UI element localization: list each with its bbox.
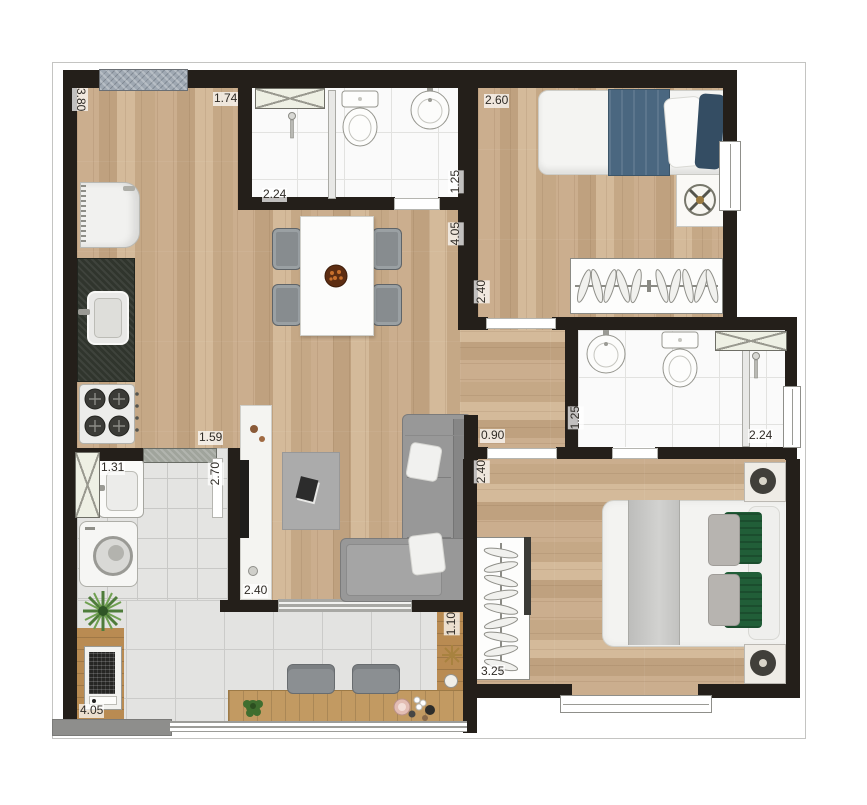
bathroom2-sink-icon (584, 330, 628, 374)
bedroom2-sheet-fold (628, 500, 680, 645)
floor-plan: 3.80 1.74 2.24 1.25 2.60 4.05 2.40 1.59 … (0, 0, 867, 805)
table-plant-icon (240, 694, 266, 720)
nightstand-lamp-icon (750, 650, 776, 676)
wall-bathroom1-left (238, 70, 252, 210)
nightstand-lamp-icon (750, 468, 776, 494)
balcony-parapet (52, 719, 172, 736)
wall-bedroom2-bottom-a (477, 684, 572, 698)
dim-bedroom1-depth: 2.40 (474, 280, 490, 303)
bathroom1-door (394, 198, 440, 210)
dim-entry-width: 1.74 (213, 92, 238, 106)
dim-bedroom2-depth: 2.40 (474, 460, 490, 483)
kitchen-sink-counter (77, 258, 135, 382)
sofa-pillow (408, 532, 447, 576)
wall-hall-bottom-b (556, 447, 578, 459)
bathroom1-toilet-icon (340, 90, 380, 148)
kitchen-pass-counter (143, 448, 217, 463)
bedroom2-pillow-gray (708, 514, 740, 566)
dim-service-depth: 2.70 (208, 462, 224, 485)
dining-chair (372, 284, 402, 326)
dining-chair (272, 284, 302, 326)
wall-bedroom2-bottom-b (698, 684, 800, 698)
dim-hall-width: 0.90 (480, 429, 505, 443)
decor-dot (259, 436, 265, 442)
washing-machine (79, 521, 138, 587)
counter-star-plant-icon (441, 644, 463, 666)
wall-bathroom2-bottom-b (655, 447, 797, 459)
kitchen-faucet-icon (78, 309, 90, 315)
wall-bedroom2-right (786, 459, 800, 698)
bathroom2-toilet-icon (660, 331, 700, 389)
wall-mid-b (552, 317, 797, 330)
dim-bedroom1-width: 2.60 (484, 94, 509, 108)
bedroom1-closet (570, 258, 723, 314)
sofa-chaise (340, 538, 472, 602)
bedroom1-door (486, 318, 556, 329)
fridge-handle (123, 186, 135, 191)
wall-bedroom1-right-upper (723, 70, 737, 143)
dim-kitchen-pass: 1.59 (198, 431, 223, 445)
balcony-stool (352, 664, 400, 694)
table-decor-icons (392, 694, 440, 722)
dim-bath2-width: 2.24 (748, 429, 773, 443)
bathroom2-vent-shaft (715, 331, 787, 351)
bedroom1-blanket (608, 89, 670, 176)
wall-hall-bottom-a (464, 447, 488, 459)
dining-chair (272, 228, 302, 270)
cooktop-icon (79, 384, 139, 444)
bathroom1-sink-icon (408, 86, 452, 130)
wall-balcony-b (412, 600, 464, 612)
dim-bath1-depth: 1.25 (448, 170, 464, 193)
fruit-bowl-icon (324, 264, 348, 288)
dim-living-balcony: 2.40 (243, 584, 268, 598)
refrigerator (80, 182, 140, 248)
bedroom2-closet-panel (524, 537, 531, 615)
dim-bath1-width: 2.24 (262, 188, 287, 202)
bedroom2-door (487, 448, 557, 459)
bathroom1-vent-shaft (255, 88, 325, 109)
fan-icon (682, 182, 718, 218)
bedroom2-window (560, 695, 712, 713)
bedroom2-pillow-gray (708, 574, 740, 626)
bathroom1-shower-head-icon (286, 112, 298, 140)
dining-chair (372, 228, 402, 270)
dim-living-left: 3.80 (72, 88, 88, 111)
wall-mid-a (458, 317, 488, 330)
decor-dot (250, 425, 258, 433)
wall-bedroom2-left (463, 459, 477, 733)
balcony-railing (170, 721, 467, 732)
balcony-stool (287, 664, 335, 694)
barbecue-grill (84, 646, 122, 710)
wall-left (63, 70, 77, 733)
counter-dish-icon (444, 674, 458, 688)
entry-window (99, 69, 188, 91)
tv-icon (240, 460, 249, 538)
decor-dot (248, 566, 258, 576)
plant-icon (80, 588, 126, 634)
bathroom2-window (783, 386, 801, 448)
dim-balcony-depth: 1.10 (444, 612, 460, 635)
bathroom1-shower-glass (328, 90, 336, 199)
bathroom2-door (612, 448, 658, 459)
bedroom2-closet (473, 537, 530, 680)
sofa-pillow (405, 441, 443, 482)
laundry-duct (75, 452, 100, 518)
wall-tv (228, 448, 240, 612)
wall-bathroom2-left (565, 330, 578, 447)
wall-bedroom1-right-lower (723, 209, 737, 330)
dim-bath2-depth: 1.25 (568, 406, 584, 429)
wall-balcony-a (220, 600, 278, 612)
bedroom1-window (719, 141, 741, 211)
wall-bathroom2-right-upper (785, 317, 797, 388)
dim-living-right: 4.05 (448, 222, 464, 245)
dim-balcony-length: 4.05 (79, 704, 104, 718)
dim-bedroom2-width: 3.25 (480, 665, 505, 679)
dim-laundry-tank: 1.31 (100, 461, 125, 475)
kitchen-sink (87, 291, 129, 345)
bathroom2-shower-head-icon (750, 352, 762, 380)
